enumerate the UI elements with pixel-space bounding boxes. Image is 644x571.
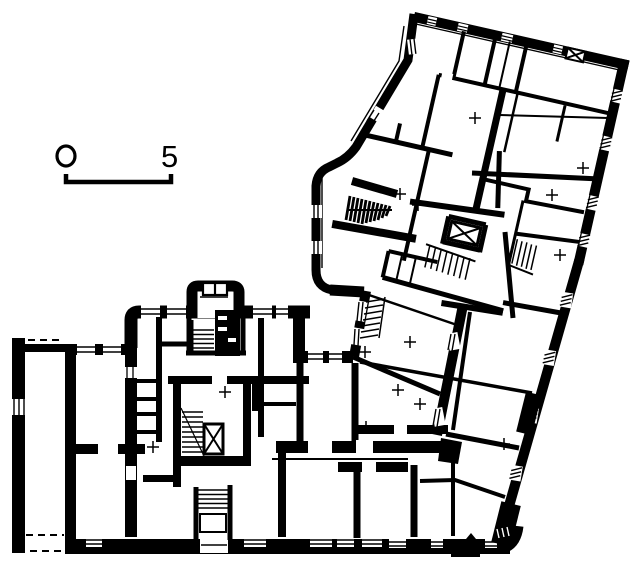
svg-text:5: 5 (161, 139, 178, 174)
